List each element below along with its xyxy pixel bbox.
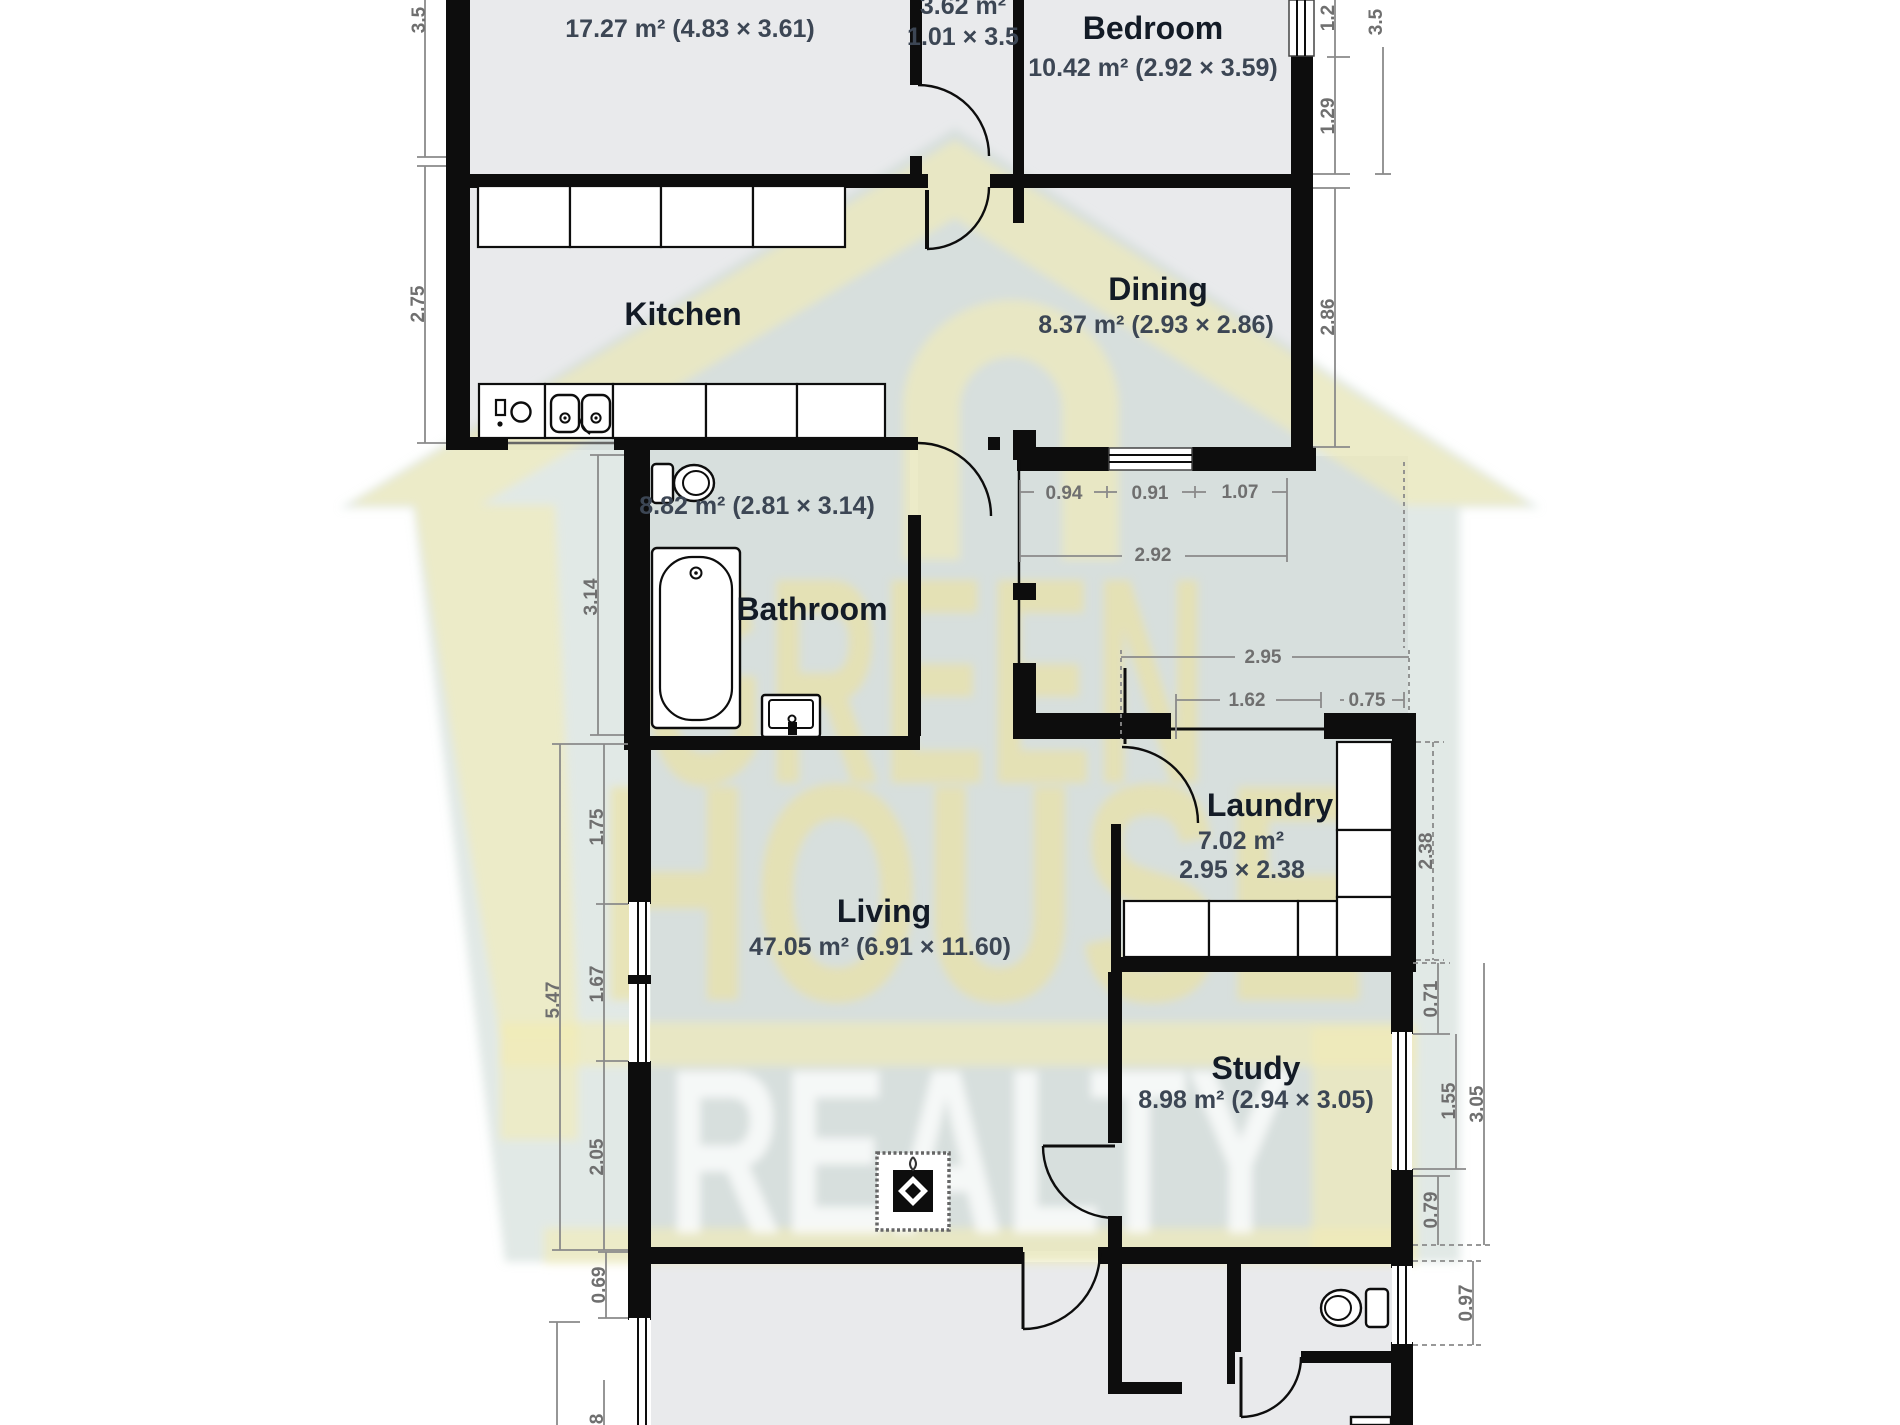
svg-text:5.47: 5.47: [543, 982, 564, 1019]
svg-text:Living: Living: [837, 893, 931, 929]
svg-text:2.38: 2.38: [1416, 833, 1437, 870]
svg-text:1.75: 1.75: [587, 808, 608, 845]
svg-text:Study: Study: [1212, 1050, 1301, 1086]
svg-text:2.05: 2.05: [587, 1138, 608, 1175]
svg-text:47.05 m² (6.91 × 11.60): 47.05 m² (6.91 × 11.60): [749, 933, 1011, 961]
svg-text:10.42 m² (2.92 × 3.59): 10.42 m² (2.92 × 3.59): [1028, 54, 1277, 82]
svg-text:2.86: 2.86: [1318, 299, 1339, 336]
svg-text:1.29: 1.29: [1318, 98, 1339, 135]
svg-text:0.71: 0.71: [1421, 980, 1442, 1017]
svg-text:2.95: 2.95: [1245, 647, 1282, 668]
svg-text:Bathroom: Bathroom: [736, 591, 887, 627]
svg-text:2.92: 2.92: [1135, 545, 1172, 566]
svg-text:Kitchen: Kitchen: [624, 296, 741, 332]
svg-text:17.27 m² (4.83 × 3.61): 17.27 m² (4.83 × 3.61): [565, 15, 814, 43]
svg-text:2.95 × 2.38: 2.95 × 2.38: [1179, 856, 1305, 884]
svg-text:3.5: 3.5: [409, 6, 430, 33]
svg-text:1.2: 1.2: [1318, 5, 1339, 31]
svg-text:1.01 × 3.5: 1.01 × 3.5: [907, 23, 1019, 51]
svg-text:0.69: 0.69: [589, 1267, 610, 1304]
svg-text:0.91: 0.91: [1132, 483, 1169, 504]
svg-text:Laundry: Laundry: [1207, 787, 1333, 823]
svg-text:1.55: 1.55: [1439, 1082, 1460, 1119]
svg-text:3.62 m²: 3.62 m²: [920, 0, 1006, 20]
svg-text:3.05: 3.05: [1467, 1085, 1488, 1122]
svg-text:1.67: 1.67: [587, 966, 608, 1003]
svg-text:0.75: 0.75: [1349, 690, 1386, 711]
svg-text:1.07: 1.07: [1222, 482, 1259, 503]
svg-text:8: 8: [587, 1414, 608, 1425]
svg-text:7.02 m²: 7.02 m²: [1198, 827, 1284, 855]
svg-text:0.79: 0.79: [1421, 1192, 1442, 1229]
svg-text:8.37 m² (2.93 × 2.86): 8.37 m² (2.93 × 2.86): [1038, 311, 1274, 339]
svg-text:3.5: 3.5: [1366, 8, 1387, 35]
svg-text:8.98 m² (2.94 × 3.05): 8.98 m² (2.94 × 3.05): [1138, 1086, 1374, 1114]
svg-text:2.75: 2.75: [408, 285, 429, 322]
svg-text:0.97: 0.97: [1456, 1285, 1477, 1322]
svg-text:Bedroom: Bedroom: [1083, 10, 1223, 46]
svg-text:1.62: 1.62: [1229, 690, 1266, 711]
svg-text:REALTY: REALTY: [666, 1020, 1293, 1283]
svg-text:3.14: 3.14: [581, 578, 602, 615]
svg-text:8.82 m² (2.81 × 3.14): 8.82 m² (2.81 × 3.14): [639, 492, 875, 520]
svg-text:0.94: 0.94: [1046, 483, 1083, 504]
svg-text:HOUSE: HOUSE: [596, 720, 1368, 1066]
svg-text:Dining: Dining: [1108, 271, 1208, 307]
